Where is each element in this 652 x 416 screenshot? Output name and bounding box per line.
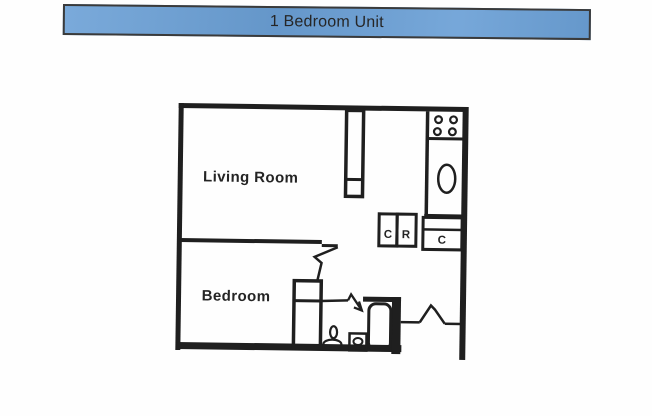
bathroom-door-swing-icon [348, 294, 362, 310]
bathtub-icon [368, 304, 391, 350]
bedroom-closet [293, 281, 321, 348]
closet-outline [293, 281, 321, 348]
floor-plan: C R C [0, 0, 652, 416]
kitchen-area [424, 111, 463, 217]
bedroom-door-swing-icon [314, 247, 337, 281]
bathroom-wall-right [391, 297, 401, 354]
closet-c-left-label: C [384, 229, 392, 241]
wall-top [179, 103, 468, 112]
living-room-label: Living Room [203, 168, 298, 186]
counter-bottom-line [424, 215, 462, 216]
counter-left-wall [426, 111, 427, 216]
stove-bottom-line [427, 138, 463, 139]
kitchen-sink-icon [438, 165, 455, 193]
closet-refrigerator-boxes: C R C [379, 214, 462, 250]
closet-c-right-label: C [438, 235, 446, 247]
bedroom-label: Bedroom [202, 287, 271, 305]
divider-jamb [322, 244, 338, 247]
closet-box-right-divider [423, 229, 462, 230]
floor-plan-group: C R C [175, 103, 469, 360]
partition-wall [345, 110, 363, 196]
partition-outline [345, 110, 363, 196]
refrigerator-r-label: R [402, 229, 411, 241]
entry-door [401, 305, 461, 324]
scanned-page: 1 Bedroom Unit [0, 0, 652, 416]
bathroom-wall-left [321, 300, 348, 301]
wall-left [175, 103, 183, 350]
divider-wall [180, 238, 322, 244]
interior-wall-divider [180, 238, 338, 247]
stove-burners-icon [434, 116, 457, 135]
entry-door-swing-icon [420, 305, 445, 323]
